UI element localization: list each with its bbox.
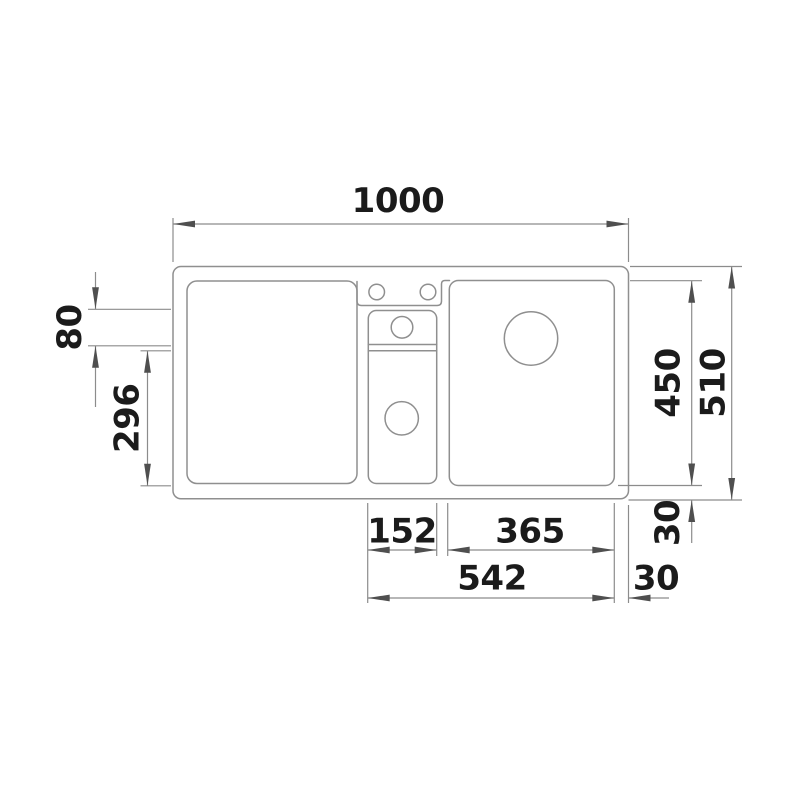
arrowhead [92, 287, 99, 309]
dimension-bowls-total-width: 542 [368, 559, 615, 602]
dim-label-1000: 1000 [352, 181, 445, 221]
arrowhead [688, 464, 695, 486]
arrowhead [728, 478, 735, 500]
dim-label-450: 450 [649, 348, 689, 417]
arrowhead [144, 351, 151, 373]
arrowhead [173, 221, 195, 228]
arrowhead [688, 281, 695, 303]
dimension-half-bowl-height: 296 [108, 351, 172, 486]
arrowhead [368, 595, 390, 602]
dim-label-296: 296 [108, 384, 148, 453]
dim-label-365: 365 [495, 512, 564, 552]
dim-label-30-vertical: 30 [648, 500, 688, 546]
arrowhead [592, 547, 614, 554]
dimension-main-bowl-height: 450 [618, 281, 702, 486]
arrowhead [92, 346, 99, 368]
half-bowl-column [368, 311, 436, 484]
dim-label-30-horizontal: 30 [633, 559, 679, 599]
dim-label-80: 80 [50, 304, 90, 350]
half-bowl-drain [385, 402, 418, 435]
arrowhead [448, 547, 470, 554]
arrowhead [607, 221, 629, 228]
dimension-overall-width: 1000 [173, 181, 629, 262]
sink-outlines [173, 267, 629, 499]
dim-label-510: 510 [694, 348, 734, 417]
arrowhead [728, 267, 735, 289]
dimension-bottom-rim: 30 [648, 500, 695, 546]
faucet-hole-left [369, 284, 385, 300]
main-bowl-drain [504, 312, 557, 365]
drawing-canvas: 1000 80 296 450 510 [0, 0, 800, 800]
arrowhead [144, 464, 151, 486]
drainboard [187, 281, 357, 484]
arrowhead [592, 595, 614, 602]
faucet-hole-right [420, 284, 436, 300]
sink-technical-drawing: 1000 80 296 450 510 [0, 0, 800, 800]
dimension-half-bowl-width: 152 [367, 503, 436, 603]
dim-label-152: 152 [367, 512, 436, 552]
dim-label-542: 542 [457, 559, 526, 599]
tray-hole [391, 317, 413, 339]
sink-outer-outline [173, 267, 629, 499]
arrowhead [688, 500, 695, 522]
